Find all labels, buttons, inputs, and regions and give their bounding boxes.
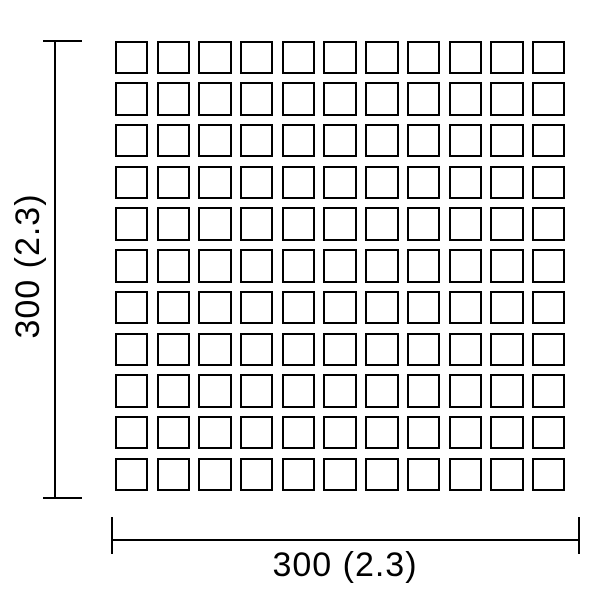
grid-cell — [157, 41, 190, 74]
grid-cell — [532, 166, 565, 199]
grid-cell — [323, 416, 356, 449]
grid-cell — [407, 207, 440, 240]
grid-cell — [490, 124, 523, 157]
grid-cell — [282, 41, 315, 74]
grid-cell — [115, 166, 148, 199]
grid-cell — [449, 82, 482, 115]
grid-cell — [323, 374, 356, 407]
grid-cell — [365, 124, 398, 157]
grid-cell — [198, 458, 231, 491]
height-dimension-cap-top — [43, 40, 82, 42]
grid-cell — [365, 374, 398, 407]
grid-cell — [407, 333, 440, 366]
grid-cell — [282, 166, 315, 199]
mesh-dimension-diagram: 300 (2.3) 300 (2.3) — [0, 0, 600, 600]
grid-cell — [532, 291, 565, 324]
grid-cell — [115, 249, 148, 282]
grid-cell — [449, 166, 482, 199]
width-dimension-tick-left — [111, 517, 113, 554]
grid-cell — [240, 207, 273, 240]
grid-cell — [532, 333, 565, 366]
grid-cell — [407, 458, 440, 491]
grid-cell — [323, 291, 356, 324]
grid-cell — [449, 41, 482, 74]
height-dimension-cap-bottom — [43, 497, 82, 499]
width-dimension-label: 300 (2.3) — [205, 548, 485, 582]
grid-cell — [198, 82, 231, 115]
grid-cell — [490, 416, 523, 449]
grid-cell — [532, 249, 565, 282]
grid-cell — [240, 82, 273, 115]
grid-cell — [323, 41, 356, 74]
grid-cell — [240, 41, 273, 74]
grid-cell — [157, 166, 190, 199]
grid-cell — [240, 291, 273, 324]
grid-cell — [323, 333, 356, 366]
grid-cell — [240, 249, 273, 282]
grid-cell — [282, 416, 315, 449]
grid-cell — [407, 374, 440, 407]
grid-cell — [115, 458, 148, 491]
grid-cell — [240, 124, 273, 157]
grid-cell — [365, 291, 398, 324]
grid-cell — [449, 374, 482, 407]
grid-cell — [323, 458, 356, 491]
grid-cell — [240, 416, 273, 449]
grid-cell — [282, 374, 315, 407]
grid-cell — [490, 166, 523, 199]
grid-cell — [198, 333, 231, 366]
width-dimension-tick-right — [578, 517, 580, 554]
grid-cell — [157, 291, 190, 324]
grid-cell — [240, 374, 273, 407]
grid-cell — [449, 416, 482, 449]
grid-cell — [449, 458, 482, 491]
grid-cell — [240, 333, 273, 366]
grid-cell — [490, 458, 523, 491]
grid-cell — [532, 458, 565, 491]
grid-cell — [490, 333, 523, 366]
grid-cell — [490, 249, 523, 282]
grid-cell — [282, 82, 315, 115]
grid-cell — [365, 333, 398, 366]
grid-cell — [240, 458, 273, 491]
grid-cell — [323, 166, 356, 199]
grid-cell — [407, 416, 440, 449]
grid-cell — [282, 249, 315, 282]
grid-cell — [490, 291, 523, 324]
grid-cell — [365, 249, 398, 282]
grid-cell — [365, 416, 398, 449]
grid-cell — [115, 41, 148, 74]
grid-cell — [115, 124, 148, 157]
grid-cell — [115, 374, 148, 407]
grid-cell — [449, 333, 482, 366]
grid-cell — [365, 41, 398, 74]
grid-cell — [115, 416, 148, 449]
height-dimension-label: 300 (2.3) — [11, 126, 45, 406]
grid-cell — [282, 333, 315, 366]
grid-cell — [198, 41, 231, 74]
grid-cell — [157, 416, 190, 449]
grid-cell — [157, 124, 190, 157]
grid-cell — [365, 82, 398, 115]
grid-cell — [449, 249, 482, 282]
grid-cell — [198, 207, 231, 240]
grid-cell — [323, 207, 356, 240]
grid-cell — [407, 124, 440, 157]
grid-cell — [365, 166, 398, 199]
grid-cell — [365, 207, 398, 240]
grid-cell — [157, 207, 190, 240]
grid-cell — [198, 374, 231, 407]
grid-cell — [407, 249, 440, 282]
grid-cell — [490, 41, 523, 74]
grid-cell — [157, 458, 190, 491]
grid-cell — [532, 416, 565, 449]
grid-cell — [407, 291, 440, 324]
grid-cell — [115, 291, 148, 324]
grid-cell — [157, 333, 190, 366]
grid-cell — [532, 374, 565, 407]
mesh-grid — [115, 41, 565, 491]
grid-cell — [115, 207, 148, 240]
grid-cell — [198, 249, 231, 282]
grid-cell — [157, 249, 190, 282]
grid-cell — [490, 374, 523, 407]
grid-cell — [115, 82, 148, 115]
grid-cell — [198, 416, 231, 449]
grid-cell — [282, 124, 315, 157]
grid-cell — [323, 82, 356, 115]
grid-cell — [282, 207, 315, 240]
grid-cell — [449, 124, 482, 157]
grid-cell — [449, 291, 482, 324]
height-dimension-line — [54, 41, 56, 500]
grid-cell — [532, 207, 565, 240]
grid-cell — [198, 124, 231, 157]
grid-cell — [282, 458, 315, 491]
grid-cell — [115, 333, 148, 366]
grid-cell — [407, 41, 440, 74]
grid-cell — [282, 291, 315, 324]
grid-cell — [449, 207, 482, 240]
grid-cell — [532, 124, 565, 157]
grid-cell — [157, 82, 190, 115]
grid-cell — [323, 124, 356, 157]
grid-cell — [532, 82, 565, 115]
width-dimension-line — [111, 539, 580, 541]
grid-cell — [407, 82, 440, 115]
grid-cell — [490, 207, 523, 240]
grid-cell — [323, 249, 356, 282]
grid-cell — [490, 82, 523, 115]
grid-cell — [198, 166, 231, 199]
grid-cell — [407, 166, 440, 199]
grid-cell — [198, 291, 231, 324]
grid-cell — [365, 458, 398, 491]
grid-cell — [532, 41, 565, 74]
grid-cell — [157, 374, 190, 407]
grid-cell — [240, 166, 273, 199]
